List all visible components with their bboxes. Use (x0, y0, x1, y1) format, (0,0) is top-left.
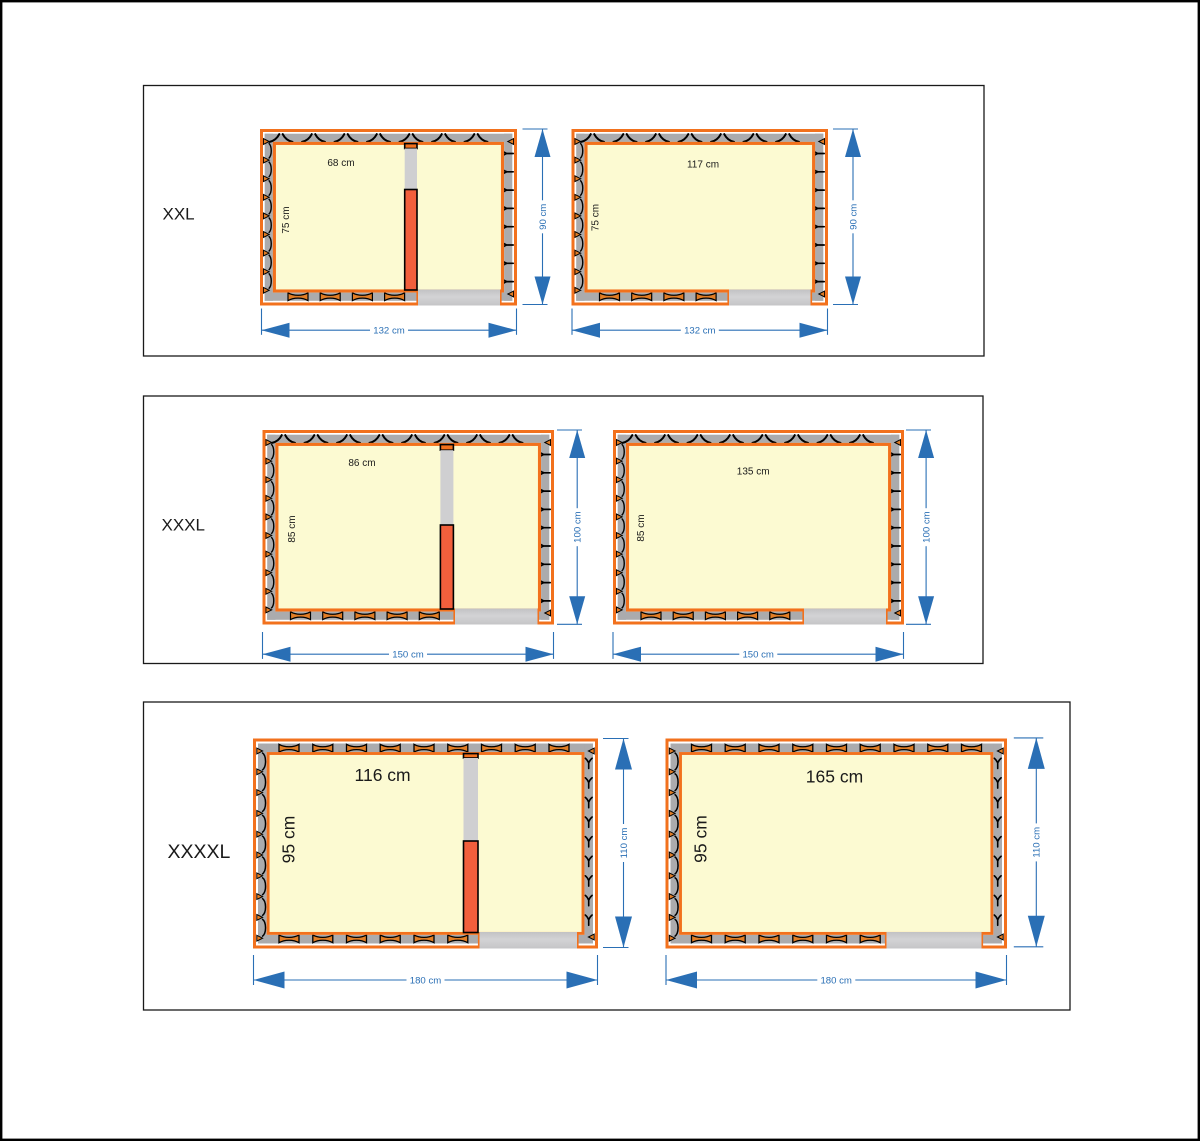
svg-text:165 cm: 165 cm (806, 767, 863, 787)
svg-text:75 cm: 75 cm (281, 206, 292, 233)
svg-text:90 cm: 90 cm (848, 204, 859, 230)
svg-text:180 cm: 180 cm (820, 975, 851, 986)
svg-text:100 cm: 100 cm (573, 511, 584, 542)
svg-text:XXXXL: XXXXL (168, 841, 231, 863)
svg-text:116 cm: 116 cm (355, 765, 411, 785)
svg-text:95 cm: 95 cm (279, 816, 299, 864)
svg-text:86 cm: 86 cm (348, 458, 375, 469)
svg-text:150 cm: 150 cm (392, 650, 423, 661)
svg-text:68 cm: 68 cm (327, 158, 354, 169)
svg-text:135 cm: 135 cm (737, 467, 770, 478)
svg-text:95 cm: 95 cm (691, 815, 711, 863)
svg-text:85 cm: 85 cm (287, 515, 298, 542)
svg-text:75 cm: 75 cm (591, 204, 602, 231)
svg-text:XXL: XXL (163, 204, 195, 223)
svg-text:100 cm: 100 cm (921, 511, 932, 542)
svg-text:XXXL: XXXL (162, 516, 205, 535)
svg-text:180 cm: 180 cm (410, 975, 441, 986)
svg-text:117 cm: 117 cm (687, 160, 719, 171)
svg-text:150 cm: 150 cm (742, 650, 773, 661)
svg-text:90 cm: 90 cm (538, 204, 549, 230)
svg-text:110 cm: 110 cm (619, 828, 630, 859)
svg-text:110 cm: 110 cm (1032, 827, 1043, 858)
svg-text:132 cm: 132 cm (373, 326, 404, 337)
svg-text:132 cm: 132 cm (684, 326, 715, 337)
svg-text:85 cm: 85 cm (636, 514, 647, 541)
